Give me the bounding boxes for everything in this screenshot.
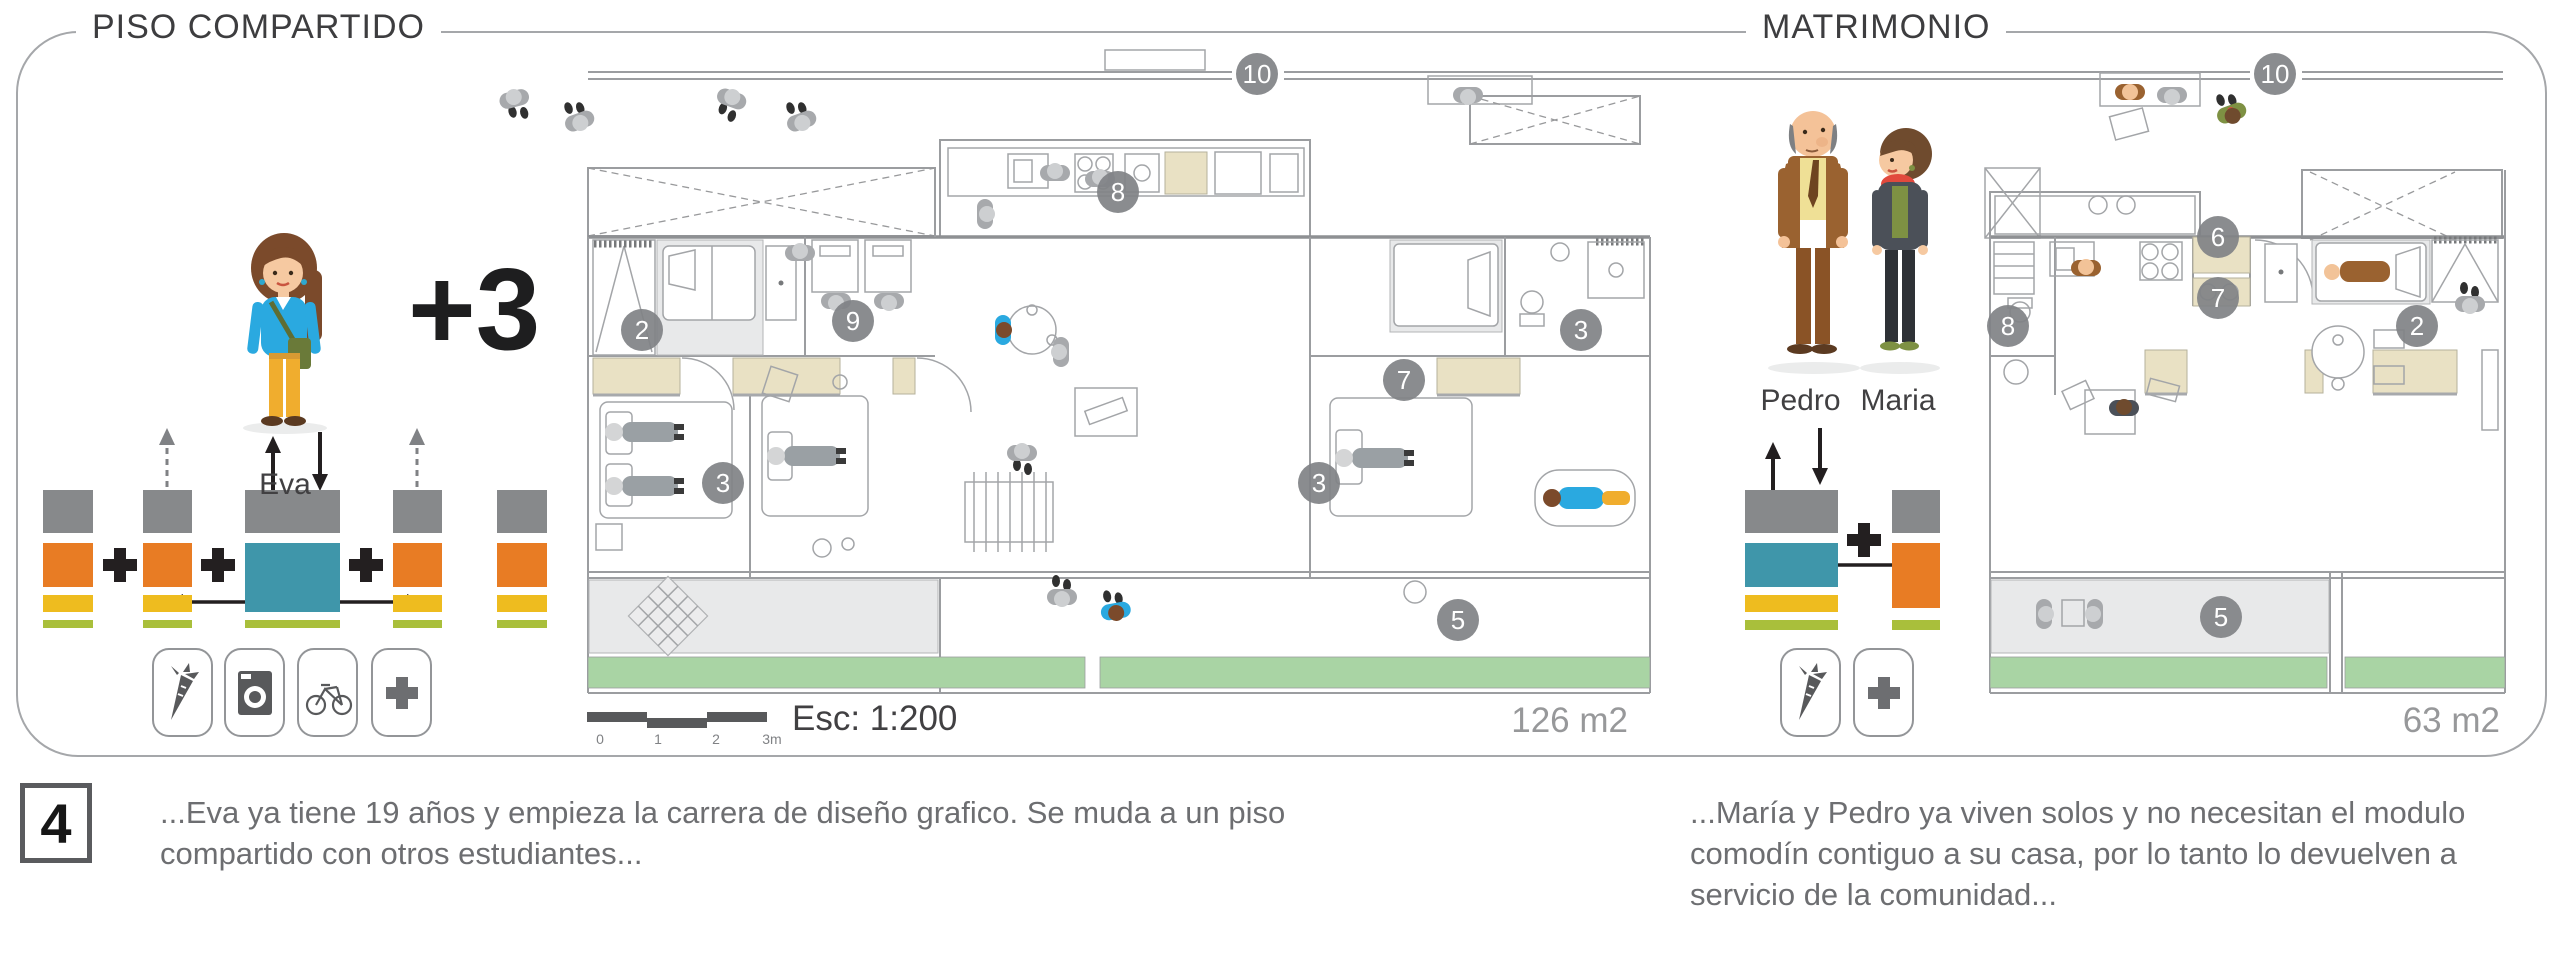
- plus-sign: [201, 548, 235, 582]
- plus-sign: [1847, 523, 1881, 557]
- infographic-stage: PISO COMPARTIDO MATRIMONIO .w{stroke:: [0, 0, 2560, 956]
- plan-number-marker: 10: [2254, 53, 2296, 95]
- scale-label: Esc: 1:200: [792, 699, 957, 739]
- amenity-bikes: [297, 648, 358, 737]
- extra-occupants-count: +3: [408, 242, 540, 376]
- amenity-more: [371, 648, 432, 737]
- step-number-box: 4: [20, 783, 92, 863]
- amenity-garden: [152, 648, 213, 737]
- title-piso-compartido: PISO COMPARTIDO: [76, 8, 441, 47]
- amenity-more-right: [1853, 648, 1914, 737]
- amenity-garden-right: [1780, 648, 1841, 737]
- step-number: 4: [40, 791, 71, 856]
- scale-tick-label: 0: [596, 731, 604, 747]
- character-name-maria: Maria: [1861, 384, 1936, 418]
- plus-sign: [103, 548, 137, 582]
- plan-number-marker: 5: [2200, 596, 2242, 638]
- area-label-left: 126 m2: [1428, 701, 1628, 741]
- plan-number-marker: 2: [2396, 305, 2438, 347]
- plan-number-marker: 2: [621, 309, 663, 351]
- character-name-pedro: Pedro: [1760, 384, 1840, 418]
- plan-number-marker: 3: [1298, 462, 1340, 504]
- plus-sign: [349, 548, 383, 582]
- amenity-laundry: [224, 648, 285, 737]
- scale-tick-label: 1: [654, 731, 662, 747]
- caption-left: ...Eva ya tiene 19 años y empieza la car…: [160, 792, 1430, 874]
- plan-number-marker: 5: [1437, 599, 1479, 641]
- area-label-right: 63 m2: [2300, 701, 2500, 741]
- washing-machine-icon: [233, 665, 277, 721]
- plan-number-marker: 7: [1383, 359, 1425, 401]
- carrot-icon: [1789, 662, 1833, 724]
- scale-tick-label: 2: [712, 731, 720, 747]
- plan-number-marker: 10: [1236, 53, 1278, 95]
- title-matrimonio: MATRIMONIO: [1746, 8, 2006, 47]
- plan-number-marker: 8: [1097, 171, 1139, 213]
- plus-icon: [380, 671, 424, 715]
- plan-number-marker: 8: [1987, 305, 2029, 347]
- plan-number-marker: 3: [702, 462, 744, 504]
- carrot-icon: [161, 662, 205, 724]
- character-names-couple: Pedro Maria: [1748, 384, 1948, 418]
- plus-icon: [1862, 671, 1906, 715]
- maria-illustration: [1852, 118, 1950, 376]
- character-name-eva: Eva: [225, 468, 345, 502]
- plan-number-marker: 3: [1560, 309, 1602, 351]
- plan-number-marker: 6: [2197, 216, 2239, 258]
- plan-number-marker: 9: [832, 300, 874, 342]
- plan-number-marker: 7: [2197, 277, 2239, 319]
- bicycle-icon: [303, 667, 353, 719]
- eva-illustration: [225, 220, 345, 435]
- caption-right: ...María y Pedro ya viven solos y no nec…: [1690, 792, 2470, 915]
- scale-tick-label: 3m: [762, 731, 781, 747]
